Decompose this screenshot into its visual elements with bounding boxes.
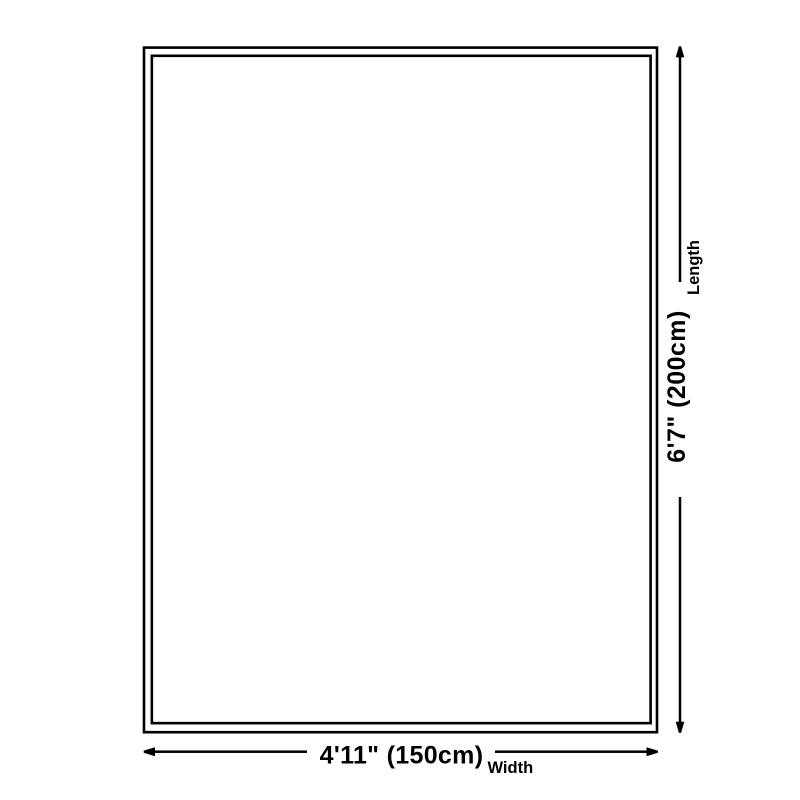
svg-text:Length: Length (685, 240, 703, 295)
svg-text:Width: Width (488, 759, 534, 777)
svg-text:6'7" (200cm): 6'7" (200cm) (663, 310, 691, 462)
svg-text:4'11" (150cm): 4'11" (150cm) (320, 742, 484, 770)
